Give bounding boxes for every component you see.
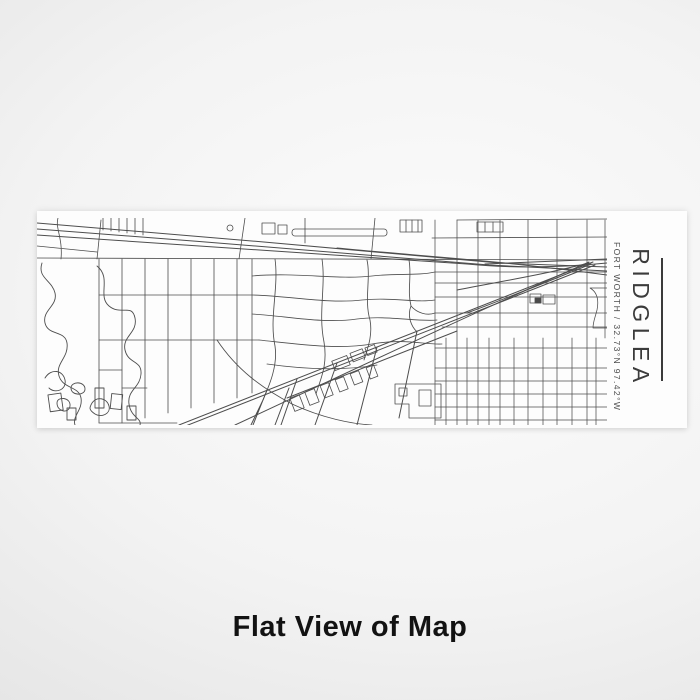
view-caption: Flat View of Map <box>0 611 700 644</box>
street-grid-left <box>37 218 259 423</box>
rail-yard-details <box>97 218 607 259</box>
street-grid-right <box>435 220 607 425</box>
diagonal-boulevard <box>179 262 595 425</box>
park-creek-area <box>41 263 141 425</box>
title-divider-rule <box>661 258 663 381</box>
street-map-graphic <box>37 218 607 425</box>
map-wrap-preview: FORT WORTH / 32.73°N 97.42°W RIDGLEA <box>37 211 687 428</box>
building-footprints <box>290 294 555 418</box>
map-subtitle-label: FORT WORTH / 32.73°N 97.42°W <box>611 242 623 392</box>
map-title-label: RIDGLEA <box>627 238 655 398</box>
